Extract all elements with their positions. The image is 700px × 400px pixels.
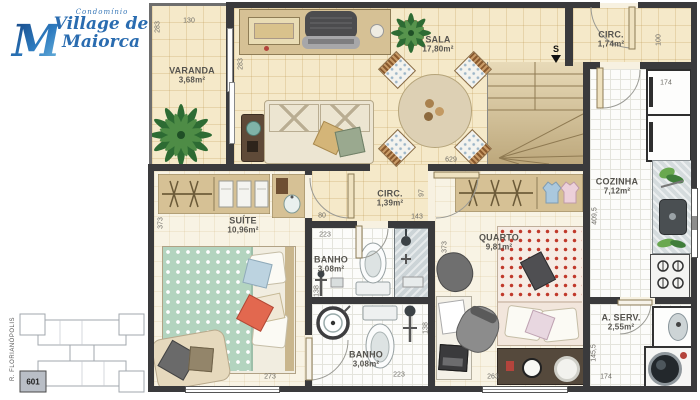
decor-dot (264, 46, 269, 51)
fridge-handle (649, 77, 653, 107)
dim-circ-lower-height: 97 (419, 189, 426, 197)
stairs-marker-letter: S (549, 44, 563, 54)
tank-basin (668, 313, 688, 341)
laptop-keyboard (442, 357, 463, 366)
decor-box (506, 361, 514, 371)
fridge (646, 69, 692, 117)
kitchen-sink (659, 199, 687, 235)
dim-quarto-width: 263 (487, 374, 499, 381)
washer-door (648, 352, 682, 386)
sliding-door-pane (229, 82, 235, 144)
side-table (241, 114, 265, 162)
sala-label: SALA 17,80m² (422, 36, 453, 55)
wall (640, 62, 697, 69)
dim-suite-nook: 80 (318, 213, 326, 220)
room-area: 1,39m² (377, 200, 404, 209)
dim-aserv-width: 174 (600, 374, 612, 381)
keyplan-unit-label: 601 (26, 378, 39, 387)
fridge (646, 114, 692, 162)
suite-label: SUÍTE 10,96m² (227, 217, 258, 236)
stairs-direction: S (549, 44, 563, 63)
keyplan-street-label: R. FLORIANÓPOLIS (10, 314, 16, 384)
dim-aserv-height: 145,5 (591, 344, 598, 362)
shirt-icon (561, 182, 579, 203)
centerpiece (424, 112, 433, 121)
decor-bowl (370, 24, 384, 38)
door-quarto (434, 172, 480, 220)
door-banho-suite (306, 336, 350, 382)
centerpiece (435, 107, 444, 116)
fridge-handle (649, 122, 653, 152)
sofa-cushion (269, 104, 319, 132)
window (691, 188, 698, 258)
stove-burners (651, 255, 689, 297)
wall (148, 164, 154, 392)
circ-upper-label: CIRC. 1,74m² (598, 31, 625, 50)
door-cozinha (597, 66, 641, 110)
dim-banho-social-width: 223 (319, 232, 331, 239)
room-area: 10,96m² (227, 227, 258, 236)
bed-headboard (285, 247, 294, 371)
room-area: 7,12m² (596, 188, 638, 197)
logo-monogram-letter: M (10, 16, 58, 64)
dim-sala-west-wall: 283 (238, 58, 245, 70)
dim-banho-suite-width: 223 (393, 372, 405, 379)
room-area: 3,08m² (314, 266, 348, 275)
varanda-label: VARANDA 3,68m² (169, 67, 215, 86)
banho-suite-label: BANHO 3,08m² (349, 351, 383, 370)
brand-logo: M Condomínio Village de Maiorca (8, 2, 148, 66)
sofa (264, 100, 374, 164)
dim-fridge-width: 174 (660, 80, 672, 87)
wall (305, 218, 312, 335)
wall (428, 164, 590, 171)
dim-banho-suite-height: 138 (423, 322, 430, 334)
wall (565, 2, 573, 66)
logo-name-line1: Village de (52, 16, 150, 33)
balcony-rail (149, 3, 229, 6)
wall (312, 221, 357, 228)
wall (638, 2, 697, 8)
decor-box (247, 141, 258, 152)
drain (669, 213, 676, 220)
cutting-board-icon (653, 161, 691, 199)
dim-varanda-width: 130 (183, 18, 195, 25)
dim-suite-width: 273 (264, 374, 276, 381)
shower-social (394, 228, 430, 299)
stairs (487, 62, 583, 164)
lamp (246, 121, 261, 136)
greens-icon (653, 235, 691, 251)
tv (302, 10, 360, 52)
keyplan: R. FLORIANÓPOLIS 601 (2, 300, 148, 398)
dim-suite-height: 373 (158, 217, 165, 229)
dim-circ-lower-width: 143 (411, 214, 423, 221)
banho-social-label: BANHO 3,08m² (314, 256, 348, 275)
door-banho-social (356, 226, 390, 260)
dining-table (398, 74, 472, 148)
detergent (680, 352, 687, 359)
window (185, 386, 280, 393)
wall (148, 164, 370, 171)
plant-varanda-icon (148, 100, 218, 170)
stove (650, 254, 690, 298)
room-area: 9,81m² (479, 244, 519, 253)
cozinha-label: COZINHA 7,12m² (596, 178, 638, 197)
wall (231, 2, 600, 8)
dim-banho-social-height: 138 (314, 285, 321, 297)
wall (590, 297, 620, 304)
drain (676, 322, 681, 327)
wall (655, 297, 697, 304)
logo-monogram-icon: M (10, 14, 58, 64)
decor-mug (522, 358, 542, 378)
door-suite (308, 172, 354, 220)
circ-lower-label: CIRC. 1,39m² (377, 190, 404, 209)
room-area: 3,68m² (169, 77, 215, 86)
dim-sala-width: 629 (445, 157, 457, 164)
kitchen-counter (652, 160, 692, 254)
wall (305, 297, 435, 304)
armchair-cushion (188, 346, 214, 372)
floorplan-page: M Condomínio Village de Maiorca R. FLORI… (0, 0, 700, 400)
washer-glass (656, 360, 666, 370)
wall (428, 221, 435, 392)
quarto-label: QUARTO 9,81m² (479, 234, 519, 253)
wall (583, 62, 590, 392)
area-servico-label: A. SERV. 2,55m² (601, 314, 640, 333)
wardrobe-suite (158, 174, 270, 214)
picture-frame (248, 17, 300, 45)
throw-pillow (335, 127, 366, 158)
dim-varanda-height: 283 (155, 21, 162, 33)
window (482, 386, 568, 393)
dim-circ-upper-depth: 100 (656, 34, 663, 46)
dim-cozinha-height: 409,5 (592, 207, 599, 225)
centerpiece (425, 99, 434, 108)
dresser-quarto (497, 348, 585, 385)
down-arrow-icon (551, 55, 561, 63)
laundry-tank (652, 306, 694, 348)
room-area: 1,74m² (598, 41, 625, 50)
decor-roll (554, 356, 580, 382)
vanity-suite (272, 174, 305, 218)
room-area: 17,80m² (422, 46, 453, 55)
washing-machine (644, 346, 694, 388)
picture-art (254, 23, 294, 39)
wall (388, 221, 428, 228)
room-area: 2,55m² (601, 324, 640, 333)
shower-head-icon (395, 229, 429, 298)
room-area: 3,08m² (349, 361, 383, 370)
dim-quarto-height: 373 (442, 241, 449, 253)
shirt-icon (543, 182, 561, 203)
logo-name-line2: Maiorca (52, 34, 150, 51)
